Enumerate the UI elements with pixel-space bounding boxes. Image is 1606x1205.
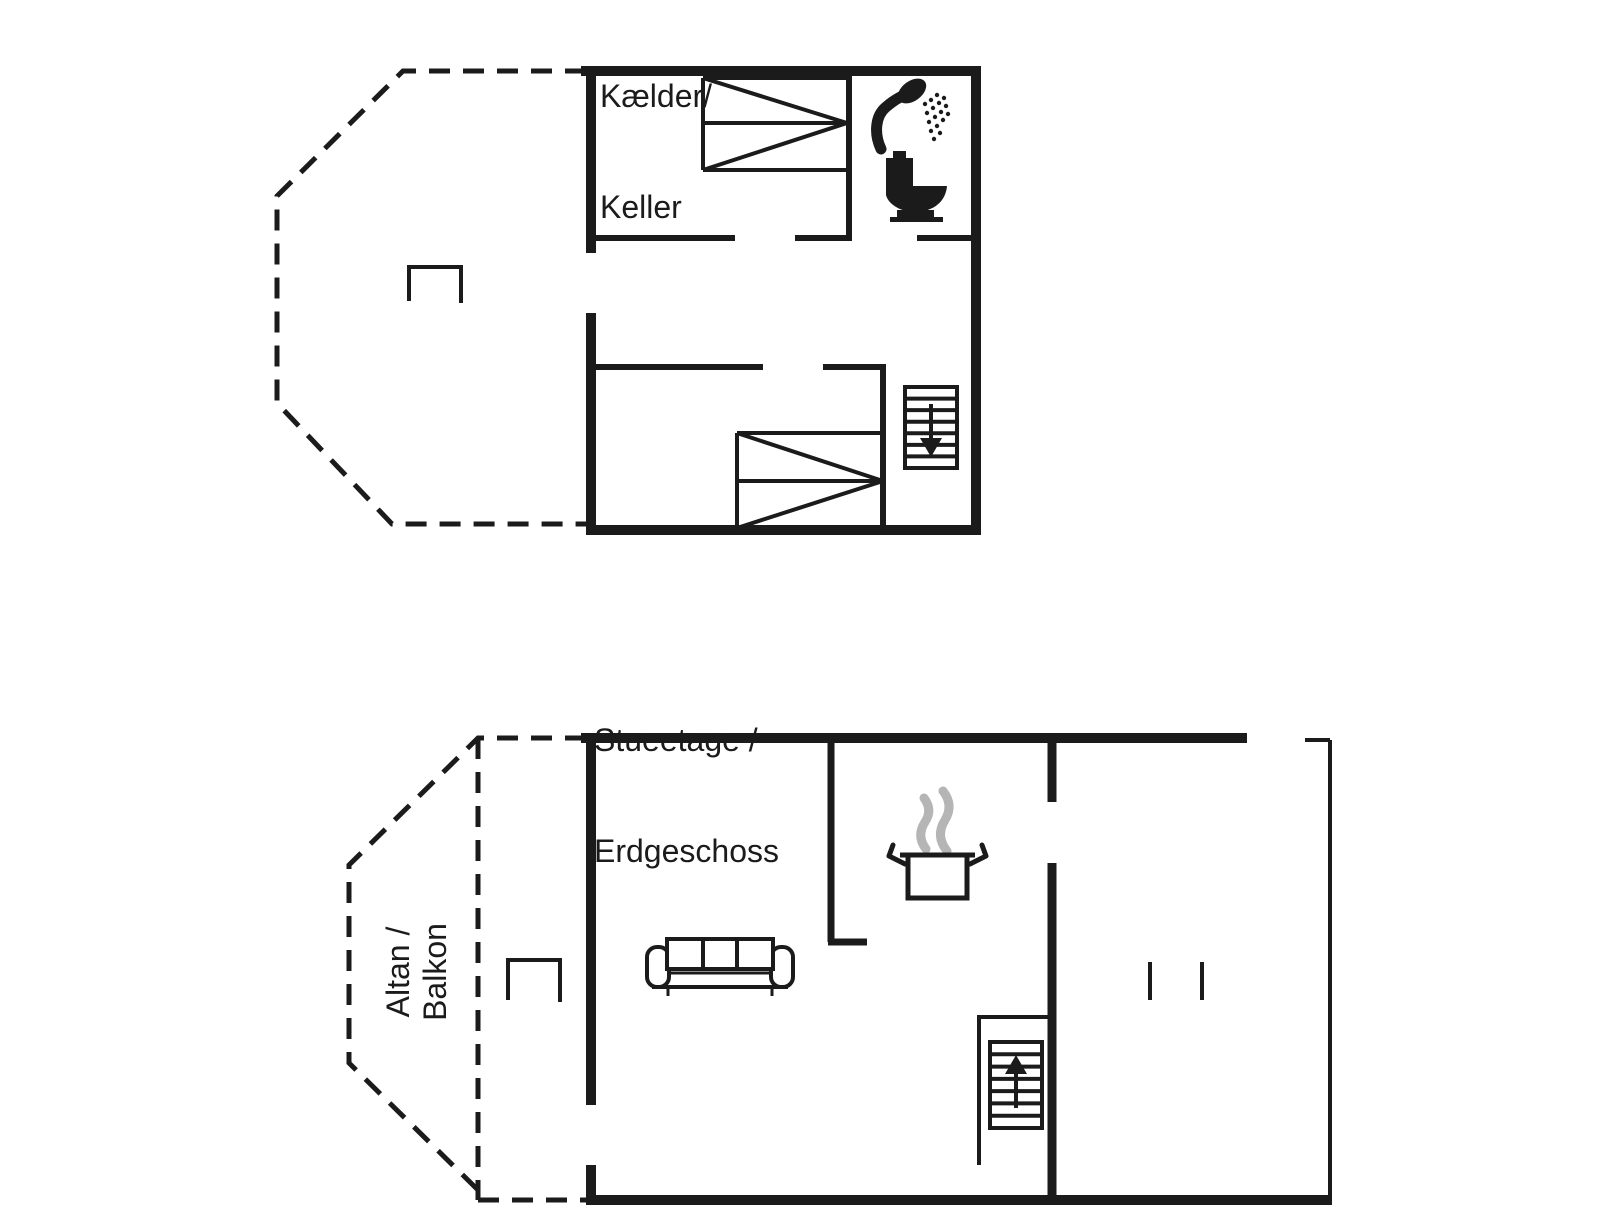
floorplan-drawing (0, 0, 1606, 1205)
ground-floor-title-line1: Stueetage / (594, 722, 779, 759)
stairs-down-icon (905, 387, 957, 468)
basement-title-line1: Kælder/ (600, 78, 712, 115)
balcony-label: Altan / Balkon (379, 862, 455, 1082)
toilet-icon (886, 151, 947, 222)
basement-title: Kælder/ Keller (600, 4, 712, 300)
table-symbol (508, 960, 560, 1002)
balcony-label-line2: Balkon (417, 923, 454, 1021)
floorplan-page: Kælder/ Keller Stueetage / Erdgeschoss A… (0, 0, 1606, 1205)
wardrobe-marks (1150, 962, 1202, 1000)
sofa-symbol (647, 939, 793, 996)
ground-floor-title: Stueetage / Erdgeschoss (594, 648, 779, 944)
double-bed-symbol (737, 433, 883, 528)
ground-right-walls (1305, 740, 1330, 1200)
shower-spray-dots (923, 93, 950, 141)
shower-icon (877, 74, 951, 149)
balcony-label-line1: Altan / (380, 927, 417, 1018)
cooking-pot-icon (889, 791, 986, 898)
ground-floor-plan (349, 733, 1332, 1205)
table-symbol (409, 267, 461, 303)
double-bed-symbol (703, 78, 847, 170)
stairs-up-icon (990, 1042, 1042, 1128)
ground-floor-title-line2: Erdgeschoss (594, 833, 779, 870)
basement-terrace-dashed-outline (277, 71, 586, 524)
kitchen-partition-wall (828, 738, 867, 942)
basement-title-line2: Keller (600, 189, 712, 226)
steam-icon (921, 791, 949, 851)
